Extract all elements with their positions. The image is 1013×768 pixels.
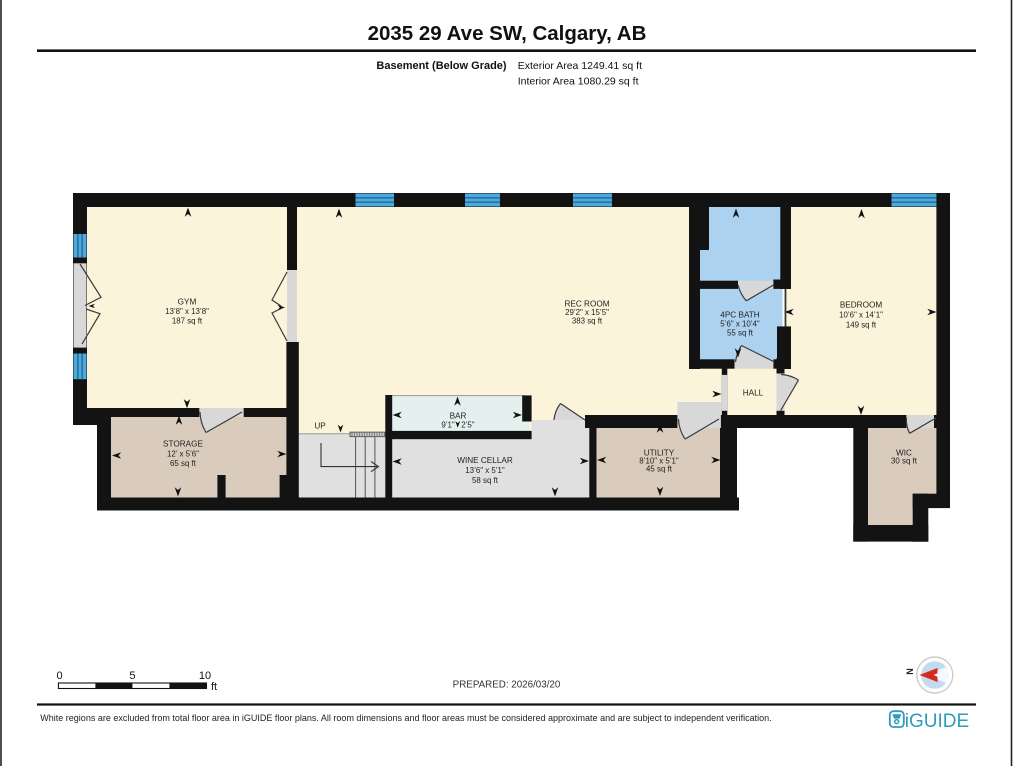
svg-text:UP: UP — [314, 422, 326, 431]
svg-text:HALL: HALL — [743, 388, 764, 397]
svg-text:9’1" 2’5": 9’1" 2’5" — [441, 421, 474, 430]
svg-text:13’8" x 13’8": 13’8" x 13’8" — [165, 307, 209, 316]
svg-text:383 sq ft: 383 sq ft — [572, 317, 603, 326]
svg-text:45 sq ft: 45 sq ft — [646, 464, 673, 473]
svg-text:5’6" x 10’4": 5’6" x 10’4" — [720, 319, 760, 328]
svg-text:187 sq ft: 187 sq ft — [172, 317, 203, 326]
svg-text:58 sq ft: 58 sq ft — [472, 476, 499, 485]
svg-text:PREPARED: 2026/03/20: PREPARED: 2026/03/20 — [453, 680, 561, 691]
svg-text:12’ x 5’6": 12’ x 5’6" — [167, 450, 199, 459]
svg-text:4PC BATH: 4PC BATH — [720, 311, 760, 320]
svg-text:10: 10 — [199, 670, 211, 682]
svg-text:Interior Area 1080.29 sq ft: Interior Area 1080.29 sq ft — [518, 76, 639, 88]
svg-text:GYM: GYM — [178, 298, 197, 307]
svg-text:10’6" x 14’1": 10’6" x 14’1" — [839, 310, 883, 319]
svg-text:55 sq ft: 55 sq ft — [727, 329, 754, 338]
svg-text:5: 5 — [129, 670, 135, 682]
svg-text:0: 0 — [56, 670, 62, 682]
svg-text:BAR: BAR — [450, 412, 467, 421]
svg-text:Basement (Below Grade): Basement (Below Grade) — [376, 60, 507, 72]
svg-text:149 sq ft: 149 sq ft — [846, 321, 877, 330]
svg-text:65 sq ft: 65 sq ft — [170, 459, 197, 468]
svg-text:N: N — [905, 668, 915, 675]
svg-text:BEDROOM: BEDROOM — [840, 301, 882, 310]
svg-text:STORAGE: STORAGE — [163, 440, 203, 449]
svg-text:White regions are excluded fro: White regions are excluded from total fl… — [40, 713, 771, 723]
svg-text:iGUIDE: iGUIDE — [905, 711, 969, 732]
svg-text:13’6" x 5’1": 13’6" x 5’1" — [465, 466, 505, 475]
svg-text:WINE CELLAR: WINE CELLAR — [457, 456, 513, 465]
svg-text:Exterior Area 1249.41 sq ft: Exterior Area 1249.41 sq ft — [518, 60, 642, 72]
svg-text:ft: ft — [211, 681, 217, 693]
svg-text:2035 29 Ave SW, Calgary, AB: 2035 29 Ave SW, Calgary, AB — [368, 22, 647, 45]
svg-text:30 sq ft: 30 sq ft — [891, 457, 918, 466]
